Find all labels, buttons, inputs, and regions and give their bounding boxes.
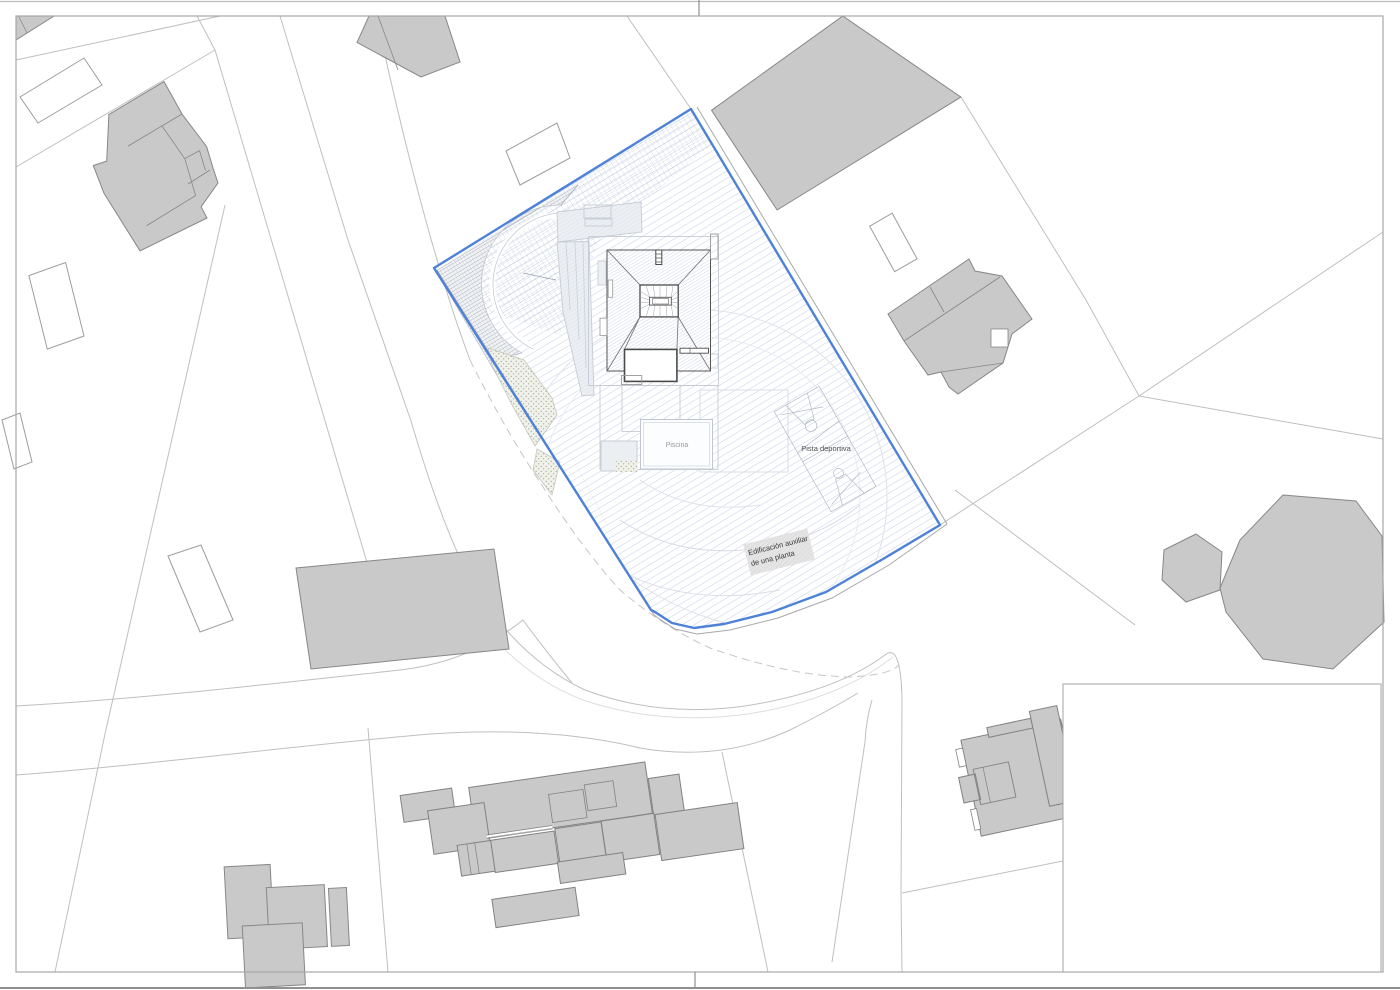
svg-text:Pista deportiva: Pista deportiva [801, 444, 851, 453]
svg-text:Piscina: Piscina [666, 442, 689, 449]
